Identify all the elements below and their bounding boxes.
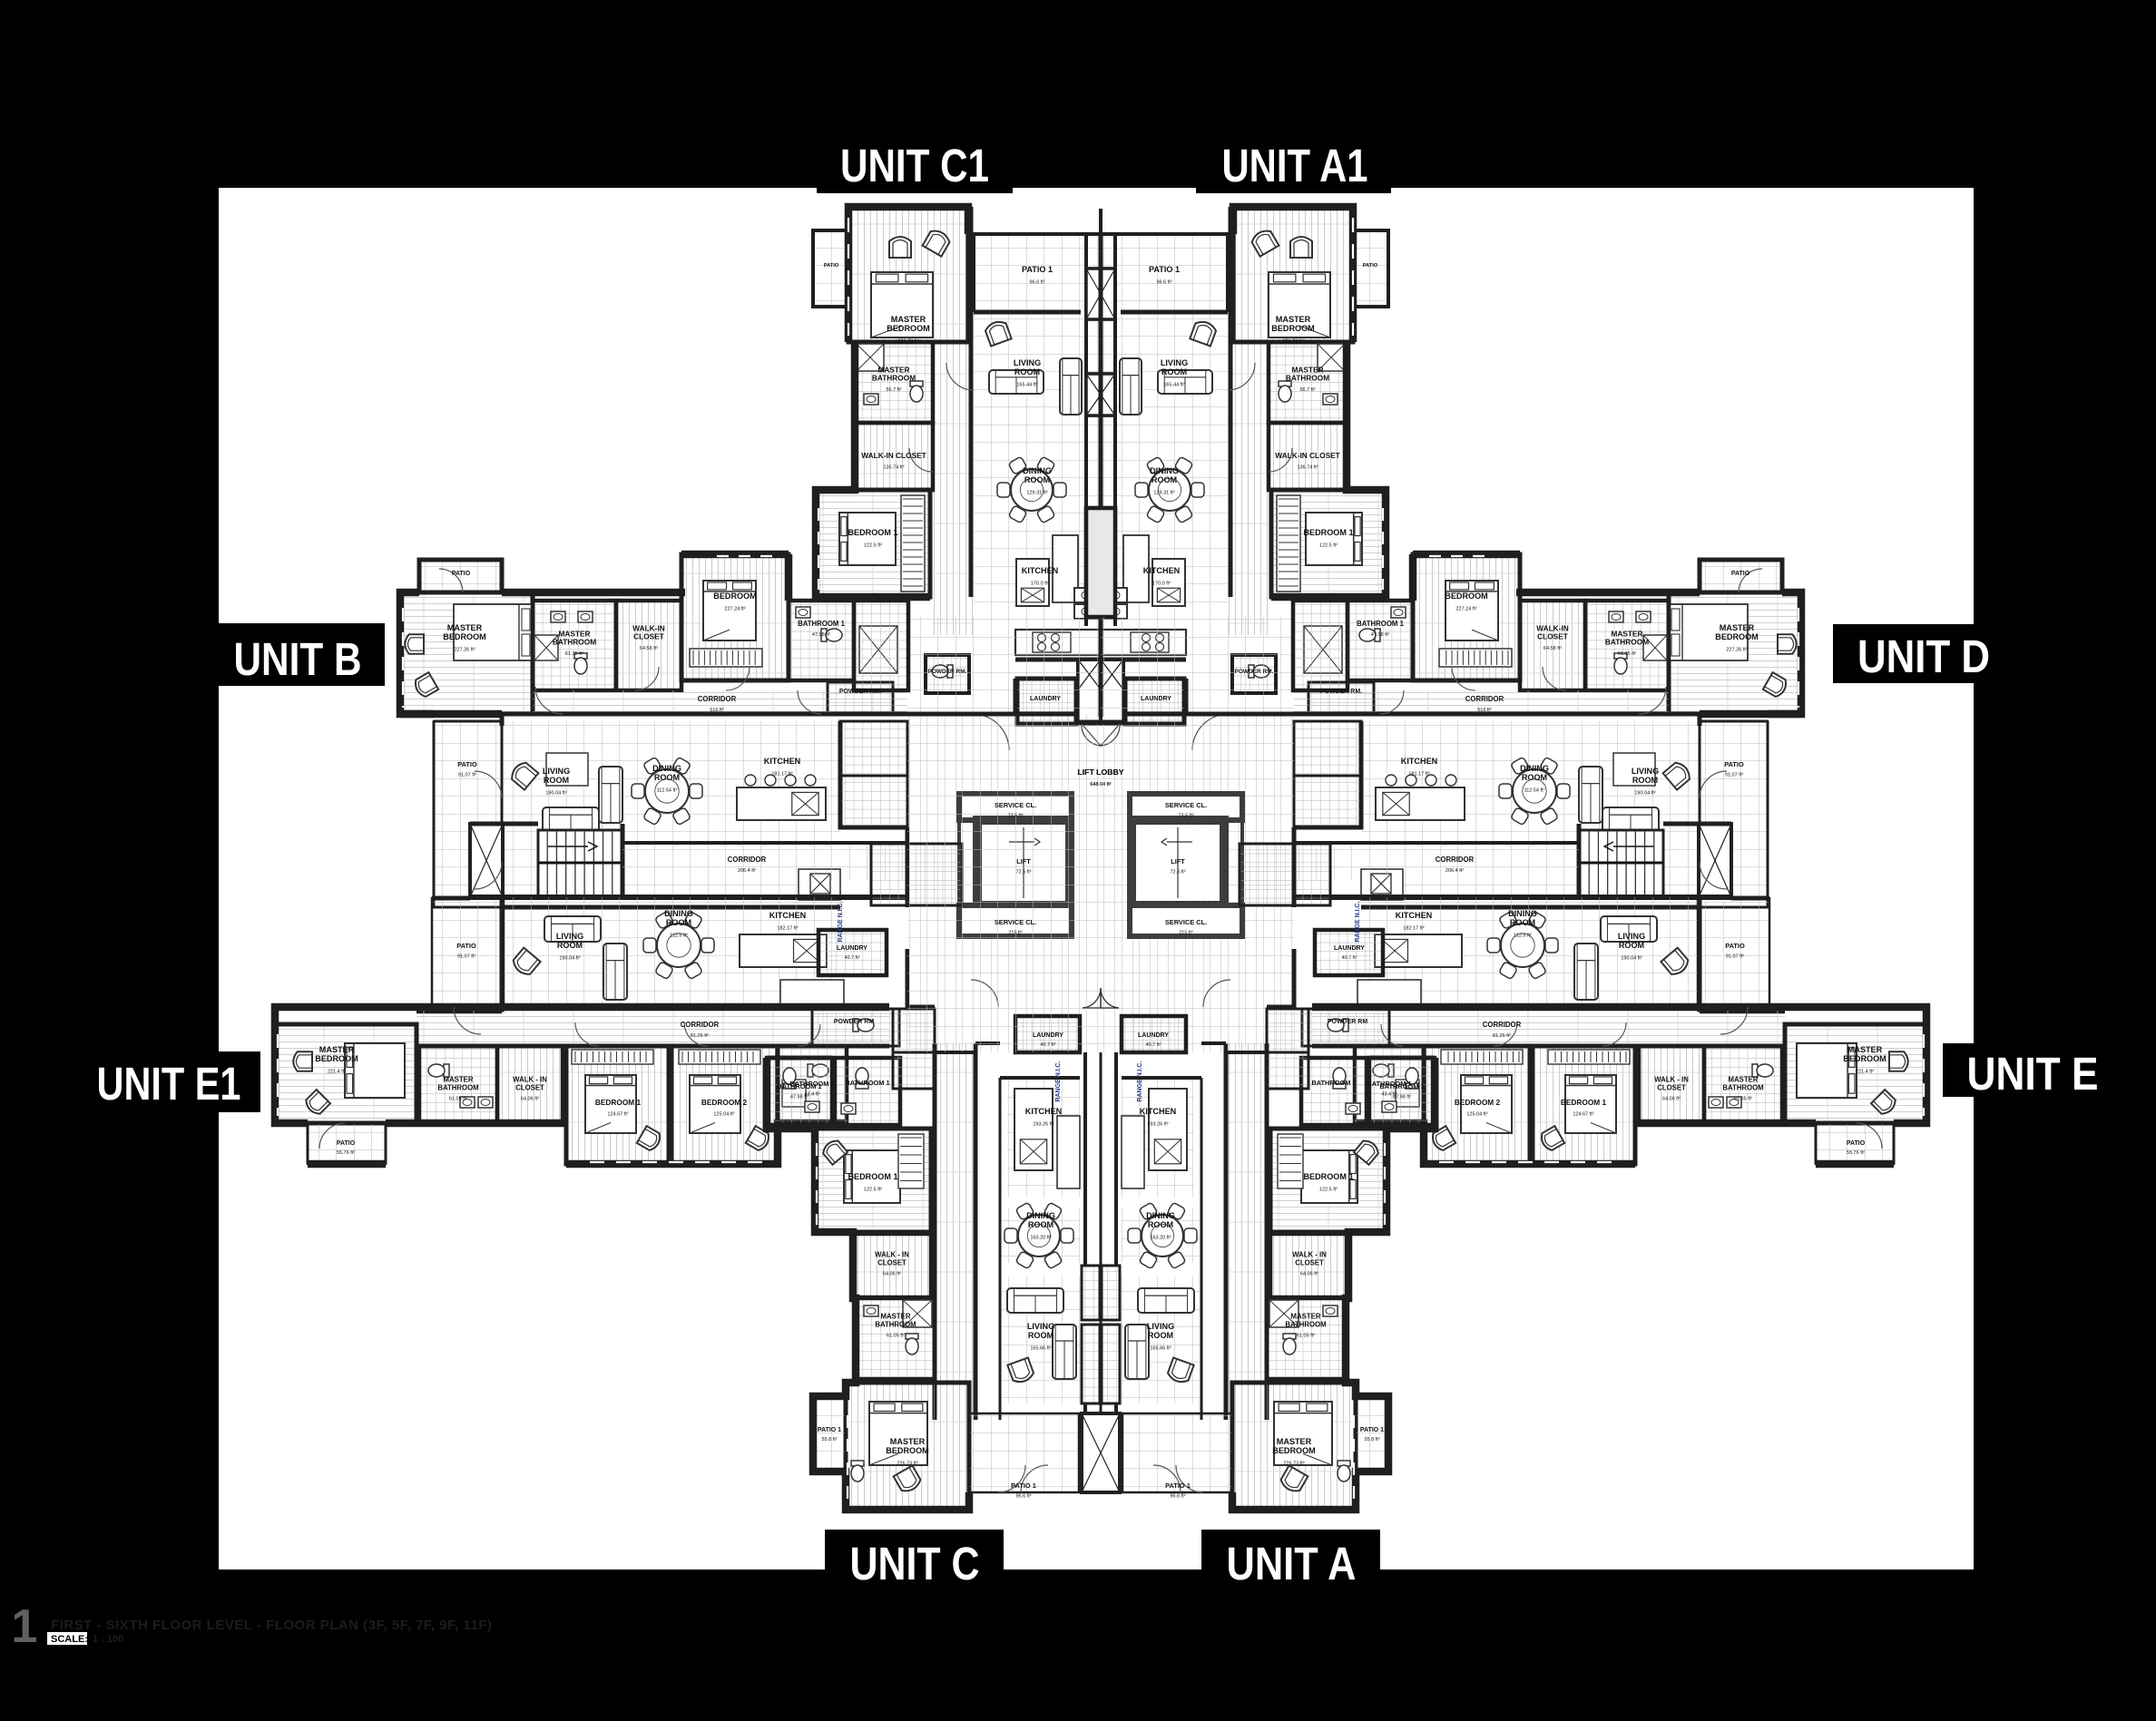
svg-text:UNIT A: UNIT A xyxy=(1227,1538,1357,1589)
svg-text:BEDROOM: BEDROOM xyxy=(886,1446,929,1455)
svg-text:BEDROOM: BEDROOM xyxy=(887,324,930,333)
svg-text:UNIT C1: UNIT C1 xyxy=(840,140,989,191)
svg-text:47.98 ft²: 47.98 ft² xyxy=(1371,632,1389,638)
svg-text:181.17 ft²: 181.17 ft² xyxy=(1408,772,1429,777)
svg-text:170.0 ft²: 170.0 ft² xyxy=(1031,582,1049,587)
svg-text:ROOM: ROOM xyxy=(1161,367,1187,376)
svg-text:221.4 ft²: 221.4 ft² xyxy=(1856,1070,1874,1075)
svg-text:RANGE N.I.C.: RANGE N.I.C. xyxy=(1137,1061,1143,1101)
svg-text:KITCHEN: KITCHEN xyxy=(1396,911,1432,920)
svg-text:BATHROOM 1: BATHROOM 1 xyxy=(845,1079,889,1087)
svg-text:1: 1 xyxy=(12,1600,38,1653)
svg-text:WALK-IN CLOSET: WALK-IN CLOSET xyxy=(1275,451,1339,460)
svg-text:190.04 ft²: 190.04 ft² xyxy=(1621,956,1641,962)
svg-text:LIFT LOBBY: LIFT LOBBY xyxy=(1077,768,1123,777)
svg-text:KITCHEN: KITCHEN xyxy=(769,911,806,920)
svg-text:POWDER RM.: POWDER RM. xyxy=(928,669,967,675)
svg-text:64.06 ft²: 64.06 ft² xyxy=(521,1096,539,1101)
svg-text:47.98 ft²: 47.98 ft² xyxy=(790,1095,808,1100)
svg-text:LIVING: LIVING xyxy=(1147,1322,1174,1331)
svg-text:ROOM: ROOM xyxy=(544,776,569,785)
svg-text:122.5 ft²: 122.5 ft² xyxy=(1319,543,1338,549)
svg-text:64.58 ft²: 64.58 ft² xyxy=(640,646,658,651)
svg-text:227.26 ft²: 227.26 ft² xyxy=(1726,648,1747,653)
svg-text:648.04 ft²: 648.04 ft² xyxy=(1090,782,1111,787)
svg-text:55.76 ft²: 55.76 ft² xyxy=(1847,1150,1865,1156)
svg-text:BATHROOM: BATHROOM xyxy=(1286,374,1329,383)
svg-text:SERVICE CL.: SERVICE CL. xyxy=(1165,918,1207,926)
svg-text:61.35 ft²: 61.35 ft² xyxy=(1618,651,1636,657)
svg-text:POWDER RM.: POWDER RM. xyxy=(839,689,881,695)
svg-text:KITCHEN: KITCHEN xyxy=(764,757,800,766)
svg-text:163.20 ft²: 163.20 ft² xyxy=(1150,1236,1171,1241)
svg-text:PATIO 1: PATIO 1 xyxy=(818,1427,841,1433)
svg-text:PATIO 1: PATIO 1 xyxy=(1360,1427,1384,1433)
svg-text:206.4 ft²: 206.4 ft² xyxy=(738,868,756,874)
svg-text:DINING: DINING xyxy=(652,764,681,773)
svg-text:40.7 ft²: 40.7 ft² xyxy=(1040,1042,1055,1048)
svg-text:LIVING: LIVING xyxy=(1161,358,1188,367)
svg-text:CLOSET: CLOSET xyxy=(877,1258,906,1266)
svg-text:PATIO: PATIO xyxy=(457,760,477,768)
svg-text:56.7 ft²: 56.7 ft² xyxy=(886,387,901,393)
svg-text:LIVING: LIVING xyxy=(543,767,570,776)
svg-text:PATIO: PATIO xyxy=(1847,1140,1866,1147)
svg-text:MASTER: MASTER xyxy=(1276,315,1311,324)
svg-text:165.44 ft²: 165.44 ft² xyxy=(1163,383,1184,388)
svg-text:ROOM: ROOM xyxy=(1510,918,1535,927)
svg-text:MASTER: MASTER xyxy=(891,315,926,324)
svg-text:112.5 ft²: 112.5 ft² xyxy=(1514,934,1532,939)
svg-text:SERVICE CL.: SERVICE CL. xyxy=(995,918,1036,926)
svg-text:122.5 ft²: 122.5 ft² xyxy=(1319,1188,1338,1193)
svg-text:SERVICE CL.: SERVICE CL. xyxy=(995,801,1036,809)
svg-text:PATIO: PATIO xyxy=(337,1140,356,1147)
svg-text:122.5 ft²: 122.5 ft² xyxy=(864,543,882,549)
svg-text:BEDROOM 1: BEDROOM 1 xyxy=(848,1172,897,1181)
svg-text:40.7 ft²: 40.7 ft² xyxy=(1145,1042,1161,1048)
svg-text:CLOSET: CLOSET xyxy=(1537,632,1568,641)
svg-text:POWDER RM.: POWDER RM. xyxy=(1235,669,1274,675)
svg-text:122.5 ft²: 122.5 ft² xyxy=(864,1188,882,1193)
svg-text:227.24 ft²: 227.24 ft² xyxy=(1455,607,1476,612)
svg-text:165.66 ft²: 165.66 ft² xyxy=(1150,1346,1171,1352)
svg-text:MASTER: MASTER xyxy=(890,1437,926,1446)
svg-text:64.58 ft²: 64.58 ft² xyxy=(1543,646,1562,651)
svg-text:DINING: DINING xyxy=(1023,466,1052,475)
svg-text:ROOM: ROOM xyxy=(666,918,691,927)
svg-text:125.04 ft²: 125.04 ft² xyxy=(1466,1112,1487,1118)
svg-text:BATHROOM: BATHROOM xyxy=(553,638,596,647)
svg-text:40.7 ft²: 40.7 ft² xyxy=(844,955,859,961)
svg-text:73.5 ft²: 73.5 ft² xyxy=(1178,814,1193,819)
svg-text:PATIO: PATIO xyxy=(1724,760,1744,768)
svg-text:BATHROOM: BATHROOM xyxy=(872,374,916,383)
svg-text:221.4 ft²: 221.4 ft² xyxy=(328,1070,346,1075)
svg-text:RANGE N.I.C.: RANGE N.I.C. xyxy=(838,901,844,942)
svg-text:206.4 ft²: 206.4 ft² xyxy=(1445,868,1464,874)
svg-text:61.05 ft²: 61.05 ft² xyxy=(449,1096,467,1101)
svg-text:516 ft²: 516 ft² xyxy=(1477,708,1492,713)
svg-text:CLOSET: CLOSET xyxy=(633,632,664,641)
svg-text:181.17 ft²: 181.17 ft² xyxy=(771,772,792,777)
svg-text:ROOM: ROOM xyxy=(654,773,680,782)
svg-text:BATHROOM 1: BATHROOM 1 xyxy=(798,620,845,628)
svg-text:PATIO 1: PATIO 1 xyxy=(1022,265,1053,274)
svg-text:55.76 ft²: 55.76 ft² xyxy=(337,1150,355,1156)
svg-text:UNIT E: UNIT E xyxy=(1967,1048,2099,1100)
svg-text:112.5 ft²: 112.5 ft² xyxy=(670,934,688,939)
svg-text:LAUNDRY: LAUNDRY xyxy=(1334,945,1365,952)
svg-text:BEDROOM 1: BEDROOM 1 xyxy=(595,1098,642,1107)
svg-text:226.73 ft²: 226.73 ft² xyxy=(1282,339,1303,345)
svg-text:47.98 ft²: 47.98 ft² xyxy=(812,632,830,638)
svg-text:BATHROOM: BATHROOM xyxy=(1285,1320,1326,1328)
svg-text:61.35 ft²: 61.35 ft² xyxy=(565,651,583,657)
svg-text:KITCHEN: KITCHEN xyxy=(1143,566,1180,575)
svg-text:DINING: DINING xyxy=(1520,764,1549,773)
svg-text:55.8 ft²: 55.8 ft² xyxy=(821,1437,837,1442)
svg-text:BEDROOM: BEDROOM xyxy=(713,592,757,601)
svg-text:SERVICE CL.: SERVICE CL. xyxy=(1165,801,1207,809)
svg-text:LIFT: LIFT xyxy=(1016,857,1031,865)
svg-text:BEDROOM: BEDROOM xyxy=(1272,1446,1316,1455)
svg-text:129.31 ft²: 129.31 ft² xyxy=(1153,491,1174,496)
svg-text:DINING: DINING xyxy=(1150,466,1179,475)
svg-text:BATHROOM: BATHROOM xyxy=(437,1083,478,1091)
svg-text:61.05 ft²: 61.05 ft² xyxy=(1297,1333,1315,1338)
svg-text:CORRIDOR: CORRIDOR xyxy=(681,1021,720,1029)
svg-text:81.26 ft²: 81.26 ft² xyxy=(1493,1033,1511,1039)
svg-text:193.26 ft²: 193.26 ft² xyxy=(1033,1122,1053,1128)
svg-text:96.6 ft²: 96.6 ft² xyxy=(1029,280,1044,286)
svg-text:516 ft²: 516 ft² xyxy=(710,708,724,713)
svg-text:91.07 ft²: 91.07 ft² xyxy=(457,954,475,960)
svg-text:LIVING: LIVING xyxy=(1632,767,1659,776)
svg-text:226.73 ft²: 226.73 ft² xyxy=(897,1462,917,1467)
svg-text:56.7 ft²: 56.7 ft² xyxy=(1299,387,1315,393)
svg-text:LAUNDRY: LAUNDRY xyxy=(1141,696,1171,702)
svg-text:MASTER: MASTER xyxy=(1847,1045,1883,1054)
svg-text:PATIO 1: PATIO 1 xyxy=(1011,1481,1036,1490)
svg-text:190.04 ft²: 190.04 ft² xyxy=(545,791,566,797)
svg-text:55.8 ft²: 55.8 ft² xyxy=(1364,1437,1379,1442)
svg-text:BEDROOM: BEDROOM xyxy=(443,632,486,641)
svg-text:47.98 ft²: 47.98 ft² xyxy=(1393,1095,1411,1100)
svg-text:LAUNDRY: LAUNDRY xyxy=(1138,1032,1169,1039)
svg-text:215 ft²: 215 ft² xyxy=(1179,931,1193,936)
svg-text:227.24 ft²: 227.24 ft² xyxy=(724,607,745,612)
svg-text:124.67 ft²: 124.67 ft² xyxy=(1573,1112,1593,1118)
svg-text:112.54 ft²: 112.54 ft² xyxy=(657,788,678,794)
svg-text:UNIT D: UNIT D xyxy=(1857,631,1990,682)
svg-text:CLOSET: CLOSET xyxy=(515,1083,544,1091)
svg-text:CLOSET: CLOSET xyxy=(1295,1258,1324,1266)
svg-text:112.54 ft²: 112.54 ft² xyxy=(1524,788,1545,794)
svg-text:LAUNDRY: LAUNDRY xyxy=(1030,696,1061,702)
svg-text:165.66 ft²: 165.66 ft² xyxy=(1030,1346,1051,1352)
svg-text:BATHROOM: BATHROOM xyxy=(1722,1083,1763,1091)
svg-text:190.04 ft²: 190.04 ft² xyxy=(1634,791,1655,797)
svg-text:61.05 ft²: 61.05 ft² xyxy=(887,1333,905,1338)
svg-text:ROOM: ROOM xyxy=(1148,1331,1173,1340)
svg-text:BEDROOM 2: BEDROOM 2 xyxy=(701,1098,748,1107)
svg-text:64.06 ft²: 64.06 ft² xyxy=(883,1271,901,1276)
svg-text:72.5 ft²: 72.5 ft² xyxy=(1170,870,1185,875)
svg-text:LIVING: LIVING xyxy=(1027,1322,1054,1331)
svg-text:KITCHEN: KITCHEN xyxy=(1022,566,1058,575)
svg-text:PATIO: PATIO xyxy=(824,263,839,269)
svg-text:BEDROOM: BEDROOM xyxy=(1715,632,1759,641)
svg-text:91.07 ft²: 91.07 ft² xyxy=(1725,773,1743,778)
svg-text:DINING: DINING xyxy=(1146,1211,1175,1220)
svg-text:WALK-IN CLOSET: WALK-IN CLOSET xyxy=(861,451,926,460)
svg-text:SCALE:: SCALE: xyxy=(51,1634,88,1645)
svg-text:RANGE N.I.C.: RANGE N.I.C. xyxy=(1355,901,1361,942)
svg-text:91.07 ft²: 91.07 ft² xyxy=(458,773,476,778)
svg-text:ROOM: ROOM xyxy=(1632,776,1658,785)
svg-text:136.74 ft²: 136.74 ft² xyxy=(883,465,904,471)
svg-text:227.26 ft²: 227.26 ft² xyxy=(454,648,475,653)
svg-text:BEDROOM 1: BEDROOM 1 xyxy=(1561,1098,1607,1107)
svg-text:PATIO 1: PATIO 1 xyxy=(1149,265,1180,274)
svg-text:PATIO: PATIO xyxy=(1725,942,1745,950)
svg-text:182.17 ft²: 182.17 ft² xyxy=(777,926,798,932)
svg-text:ROOM: ROOM xyxy=(1151,475,1177,484)
svg-text:UNIT E1: UNIT E1 xyxy=(97,1058,241,1110)
svg-text:UNIT B: UNIT B xyxy=(234,633,362,685)
svg-text:KITCHEN: KITCHEN xyxy=(1025,1107,1062,1116)
svg-text:ROOM: ROOM xyxy=(1522,773,1547,782)
svg-text:129.31 ft²: 129.31 ft² xyxy=(1026,491,1047,496)
svg-text:BATHROOM: BATHROOM xyxy=(1605,638,1649,647)
svg-text:UNIT A1: UNIT A1 xyxy=(1222,140,1368,191)
svg-text:170.0 ft²: 170.0 ft² xyxy=(1152,582,1171,587)
svg-text:RANGE N.I.C.: RANGE N.I.C. xyxy=(1055,1061,1062,1101)
svg-text:64.06 ft²: 64.06 ft² xyxy=(1662,1096,1681,1101)
svg-text:81.26 ft²: 81.26 ft² xyxy=(691,1033,709,1039)
svg-text:MASTER: MASTER xyxy=(447,623,483,632)
svg-text:LIFT: LIFT xyxy=(1171,857,1185,865)
svg-text:FIRST - SIXTH FLOOR LEVEL - FL: FIRST - SIXTH FLOOR LEVEL - FLOOR PLAN (… xyxy=(51,1618,492,1633)
svg-text:BEDROOM 1: BEDROOM 1 xyxy=(848,528,897,537)
svg-text:124.67 ft²: 124.67 ft² xyxy=(607,1112,628,1118)
svg-text:CORRIDOR: CORRIDOR xyxy=(1436,856,1475,864)
svg-text:MASTER: MASTER xyxy=(1720,623,1755,632)
svg-text:64.06 ft²: 64.06 ft² xyxy=(1300,1271,1318,1276)
svg-text:BATHROOM 1: BATHROOM 1 xyxy=(1311,1079,1356,1087)
svg-text:MASTER: MASTER xyxy=(319,1045,355,1054)
svg-text:UNIT C: UNIT C xyxy=(850,1538,980,1589)
svg-text:LIVING: LIVING xyxy=(556,932,583,941)
svg-text:ROOM: ROOM xyxy=(1148,1220,1173,1229)
svg-text:182.17 ft²: 182.17 ft² xyxy=(1403,926,1424,932)
svg-text:190.04 ft²: 190.04 ft² xyxy=(559,956,580,962)
svg-text:LAUNDRY: LAUNDRY xyxy=(1033,1032,1063,1039)
svg-text:1 : 100: 1 : 100 xyxy=(93,1634,123,1645)
svg-text:DINING: DINING xyxy=(664,909,693,918)
svg-text:POWDER RM.: POWDER RM. xyxy=(1320,689,1362,695)
svg-text:61.05 ft²: 61.05 ft² xyxy=(1734,1096,1752,1101)
svg-text:BATHROOM: BATHROOM xyxy=(875,1320,916,1328)
svg-text:BEDROOM: BEDROOM xyxy=(1445,592,1488,601)
svg-text:BEDROOM 2: BEDROOM 2 xyxy=(1455,1098,1501,1107)
svg-text:BEDROOM: BEDROOM xyxy=(315,1054,358,1063)
svg-text:226.73 ft²: 226.73 ft² xyxy=(1283,1462,1304,1467)
svg-text:73.5 ft²: 73.5 ft² xyxy=(1007,814,1023,819)
svg-text:POWDER RM: POWDER RM xyxy=(1328,1019,1368,1025)
svg-text:PATIO: PATIO xyxy=(456,942,476,950)
svg-text:CORRIDOR: CORRIDOR xyxy=(698,695,737,703)
svg-text:226.73 ft²: 226.73 ft² xyxy=(897,339,918,345)
svg-text:40.7 ft²: 40.7 ft² xyxy=(1341,955,1357,961)
svg-text:LIVING: LIVING xyxy=(1618,932,1645,941)
svg-text:BEDROOM 1: BEDROOM 1 xyxy=(1303,1172,1353,1181)
svg-text:ROOM: ROOM xyxy=(1014,367,1040,376)
svg-text:BATHROOM 1: BATHROOM 1 xyxy=(1357,620,1404,628)
svg-text:91.07 ft²: 91.07 ft² xyxy=(1726,954,1744,960)
svg-text:165.44 ft²: 165.44 ft² xyxy=(1016,383,1037,388)
svg-text:KITCHEN: KITCHEN xyxy=(1401,757,1437,766)
svg-text:125.04 ft²: 125.04 ft² xyxy=(713,1112,734,1118)
svg-text:LIVING: LIVING xyxy=(1014,358,1041,367)
svg-text:ROOM: ROOM xyxy=(1619,941,1644,950)
svg-text:MASTER: MASTER xyxy=(1277,1437,1312,1446)
svg-text:193.26 ft²: 193.26 ft² xyxy=(1147,1122,1168,1128)
svg-text:KITCHEN: KITCHEN xyxy=(1140,1107,1176,1116)
svg-text:CLOSET: CLOSET xyxy=(1657,1083,1686,1091)
svg-text:ROOM: ROOM xyxy=(1028,1220,1053,1229)
svg-text:96.6 ft²: 96.6 ft² xyxy=(1156,280,1171,286)
svg-text:ROOM: ROOM xyxy=(1028,1331,1053,1340)
svg-text:ROOM: ROOM xyxy=(1024,475,1050,484)
svg-text:DINING: DINING xyxy=(1026,1211,1055,1220)
svg-text:96.6 ft²: 96.6 ft² xyxy=(1170,1494,1185,1500)
svg-text:LAUNDRY: LAUNDRY xyxy=(837,945,867,952)
svg-text:CORRIDOR: CORRIDOR xyxy=(1465,695,1504,703)
svg-text:ROOM: ROOM xyxy=(557,941,583,950)
svg-text:BATHROOM 1: BATHROOM 1 xyxy=(1379,1082,1424,1090)
svg-text:POWDER RM: POWDER RM xyxy=(834,1019,875,1025)
svg-text:BEDROOM: BEDROOM xyxy=(1271,324,1315,333)
svg-text:72.5 ft²: 72.5 ft² xyxy=(1015,870,1031,875)
svg-text:BEDROOM: BEDROOM xyxy=(1843,1054,1886,1063)
svg-text:PATIO: PATIO xyxy=(1363,263,1378,269)
svg-text:BATHROOM 1: BATHROOM 1 xyxy=(777,1082,821,1090)
svg-text:136.74 ft²: 136.74 ft² xyxy=(1297,465,1318,471)
svg-text:96.6 ft²: 96.6 ft² xyxy=(1015,1494,1031,1500)
svg-text:CORRIDOR: CORRIDOR xyxy=(728,856,767,864)
svg-text:DINING: DINING xyxy=(1508,909,1537,918)
svg-text:163.20 ft²: 163.20 ft² xyxy=(1030,1236,1051,1241)
svg-text:BEDROOM 1: BEDROOM 1 xyxy=(1303,528,1353,537)
svg-text:CORRIDOR: CORRIDOR xyxy=(1483,1021,1522,1029)
svg-text:PATIO: PATIO xyxy=(452,571,471,577)
svg-text:215 ft²: 215 ft² xyxy=(1008,931,1023,936)
svg-text:PATIO 1: PATIO 1 xyxy=(1165,1481,1191,1490)
svg-text:PATIO: PATIO xyxy=(1731,571,1750,577)
